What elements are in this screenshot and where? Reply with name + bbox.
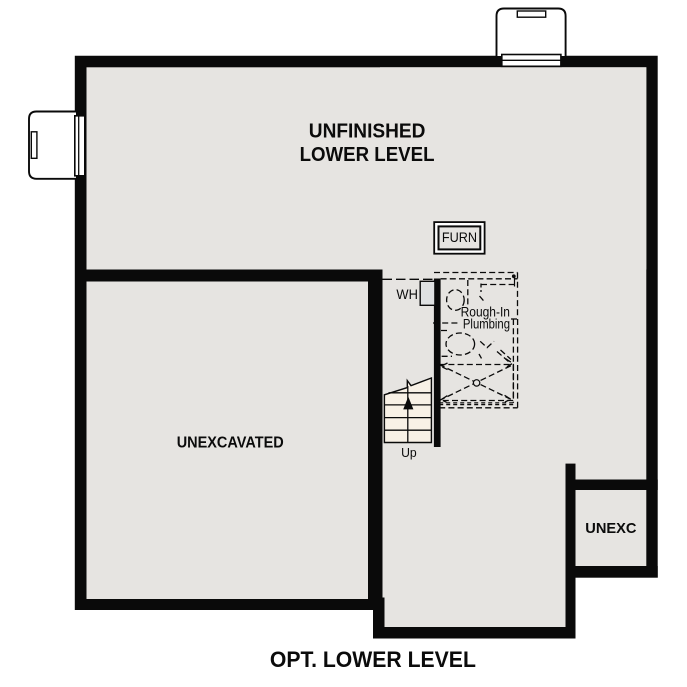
svg-text:UNEXCAVATED: UNEXCAVATED: [177, 435, 284, 452]
svg-text:UNEXC: UNEXC: [585, 521, 637, 537]
svg-text:UNFINISHED: UNFINISHED: [309, 121, 426, 143]
svg-text:Plumbing: Plumbing: [463, 317, 510, 332]
svg-text:Up: Up: [401, 445, 417, 460]
svg-text:LOWER LEVEL: LOWER LEVEL: [300, 144, 435, 166]
svg-text:WH: WH: [396, 286, 418, 302]
svg-text:OPT. LOWER LEVEL: OPT. LOWER LEVEL: [270, 647, 476, 672]
svg-text:FURN: FURN: [442, 229, 477, 245]
